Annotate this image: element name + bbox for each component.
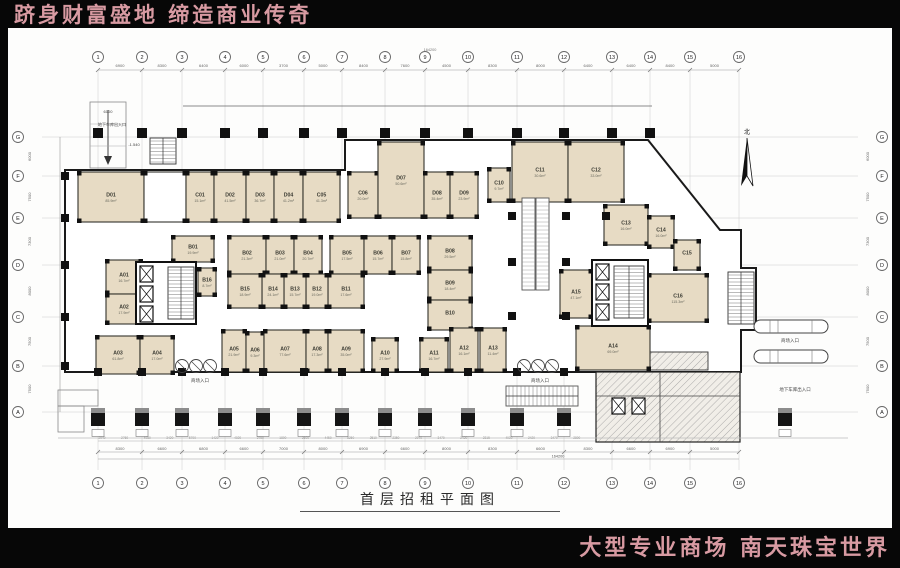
- svg-text:9.7m²: 9.7m²: [494, 187, 504, 191]
- svg-text:A08: A08: [312, 347, 322, 353]
- svg-text:D02: D02: [225, 193, 235, 199]
- svg-text:17.5m²: 17.5m²: [341, 257, 353, 261]
- svg-text:B06: B06: [373, 251, 383, 257]
- unit: [143, 171, 187, 223]
- svg-text:B08: B08: [445, 249, 455, 255]
- svg-text:15: 15: [687, 481, 693, 487]
- svg-text:11: 11: [514, 55, 520, 61]
- svg-text:23.9m²: 23.9m²: [458, 197, 470, 201]
- svg-text:16: 16: [736, 55, 742, 61]
- svg-text:B: B: [16, 364, 20, 370]
- svg-text:A01: A01: [119, 273, 129, 279]
- unit-A12: A1216.1m²: [449, 327, 479, 373]
- svg-text:B12: B12: [312, 287, 322, 293]
- svg-text:A07: A07: [280, 347, 290, 353]
- svg-text:8: 8: [383, 481, 386, 487]
- svg-text:8000: 8000: [319, 446, 329, 451]
- unit-B06: B0615.7m²: [363, 235, 393, 275]
- svg-text:17.9m²: 17.9m²: [118, 311, 130, 315]
- svg-text:7500: 7500: [865, 336, 870, 346]
- svg-text:8: 8: [383, 55, 386, 61]
- unit-A06: A069.3m²: [245, 331, 265, 373]
- svg-text:商场入口: 商场入口: [191, 377, 209, 384]
- svg-text:C13: C13: [621, 221, 631, 227]
- svg-text:20.0m²: 20.0m²: [357, 197, 369, 201]
- svg-text:5: 5: [261, 55, 264, 61]
- svg-text:E: E: [880, 216, 884, 222]
- unit-B10: B10: [427, 299, 473, 331]
- svg-text:C11: C11: [535, 168, 544, 174]
- svg-text:20.7m²: 20.7m²: [302, 257, 314, 261]
- svg-text:D09: D09: [459, 191, 469, 197]
- svg-text:B16: B16: [202, 278, 212, 284]
- svg-text:2: 2: [140, 481, 143, 487]
- svg-text:A12: A12: [459, 346, 469, 352]
- svg-text:15.7m²: 15.7m²: [289, 293, 301, 297]
- unit-A08: A0817.3m²: [305, 329, 329, 373]
- svg-text:B15: B15: [240, 287, 250, 293]
- svg-text:29.5m²: 29.5m²: [444, 255, 456, 259]
- svg-text:A03: A03: [113, 351, 123, 357]
- svg-text:A15: A15: [571, 290, 581, 296]
- svg-text:16: 16: [736, 481, 742, 487]
- unit-C14: C1416.0m²: [647, 215, 675, 249]
- svg-text:2: 2: [140, 55, 143, 61]
- svg-text:50.6m²: 50.6m²: [395, 182, 407, 186]
- unit-C01: C0115.1m²: [185, 171, 215, 223]
- svg-text:15.7m²: 15.7m²: [372, 257, 384, 261]
- svg-text:-1.540: -1.540: [128, 142, 140, 147]
- svg-text:D03: D03: [255, 193, 265, 199]
- svg-text:18.4m²: 18.4m²: [444, 287, 456, 291]
- svg-text:115.3m²: 115.3m²: [672, 300, 686, 304]
- unit-D07: D0750.6m²: [377, 141, 425, 219]
- unit-B09: B0918.4m²: [427, 269, 473, 301]
- unit-B02: B0221.3m²: [227, 235, 267, 275]
- svg-text:16.0m²: 16.0m²: [655, 234, 667, 238]
- unit-C06: C0620.0m²: [347, 171, 379, 219]
- svg-text:B13: B13: [290, 287, 300, 293]
- svg-text:北: 北: [744, 128, 750, 136]
- svg-text:77.6m²: 77.6m²: [279, 353, 291, 357]
- svg-text:A11: A11: [429, 351, 438, 357]
- svg-text:16.7m²: 16.7m²: [118, 279, 130, 283]
- svg-text:36.7m²: 36.7m²: [254, 199, 266, 203]
- unit-A07: A0777.6m²: [263, 329, 307, 373]
- svg-text:6000: 6000: [865, 151, 870, 161]
- svg-text:C12: C12: [591, 168, 601, 174]
- svg-text:9: 9: [423, 481, 426, 487]
- svg-text:6: 6: [302, 55, 305, 61]
- svg-text:15.8m²: 15.8m²: [400, 257, 412, 261]
- svg-text:D01: D01: [106, 193, 116, 199]
- svg-text:6: 6: [302, 481, 305, 487]
- svg-text:4: 4: [223, 481, 226, 487]
- svg-text:1: 1: [96, 55, 99, 61]
- unit-C05: C0541.3m²: [302, 171, 341, 223]
- svg-text:C05: C05: [317, 193, 327, 199]
- svg-text:7500: 7500: [865, 384, 870, 394]
- svg-text:6600: 6600: [240, 446, 250, 451]
- unit-C11: C1130.6m²: [511, 141, 569, 203]
- svg-text:A02: A02: [119, 305, 129, 311]
- svg-text:21.3m²: 21.3m²: [241, 257, 253, 261]
- svg-text:3: 3: [180, 481, 183, 487]
- svg-text:6900: 6900: [666, 446, 676, 451]
- svg-text:B05: B05: [342, 251, 352, 257]
- svg-text:8000: 8000: [865, 286, 870, 296]
- svg-text:7000: 7000: [279, 446, 289, 451]
- unit-A05: A0521.9m²: [221, 329, 247, 373]
- unit-B15: B1518.9m²: [227, 273, 263, 309]
- svg-text:C: C: [16, 315, 20, 321]
- svg-text:A04: A04: [152, 351, 162, 357]
- svg-text:18.9m²: 18.9m²: [239, 293, 251, 297]
- bottom-banner-slogan: 大型专业商场 南天珠宝世界: [579, 528, 890, 568]
- svg-text:41.2m²: 41.2m²: [283, 199, 295, 203]
- svg-text:6900: 6900: [116, 63, 126, 68]
- svg-text:8000: 8000: [442, 446, 452, 451]
- svg-text:30.6m²: 30.6m²: [534, 174, 546, 178]
- svg-text:6100: 6100: [104, 109, 114, 114]
- svg-text:8300: 8300: [158, 63, 168, 68]
- svg-text:A: A: [16, 410, 20, 416]
- svg-text:B01: B01: [188, 245, 198, 251]
- svg-text:5000: 5000: [319, 63, 329, 68]
- svg-text:6400: 6400: [199, 63, 209, 68]
- svg-text:12: 12: [561, 55, 567, 61]
- svg-text:6400: 6400: [584, 63, 594, 68]
- svg-text:D: D: [880, 263, 884, 269]
- svg-text:8300: 8300: [584, 446, 594, 451]
- svg-text:9.3m²: 9.3m²: [250, 354, 260, 358]
- unit-B08: B0829.5m²: [427, 235, 473, 271]
- unit-B03: B0321.0m²: [265, 235, 295, 275]
- unit-B07: B0715.8m²: [391, 235, 421, 275]
- svg-text:21.0m²: 21.0m²: [274, 257, 286, 261]
- unit-D01: D0185.9m²: [77, 171, 145, 223]
- svg-text:85.9m²: 85.9m²: [105, 199, 117, 203]
- svg-text:14: 14: [647, 55, 653, 61]
- svg-text:7500: 7500: [27, 384, 32, 394]
- svg-text:8400: 8400: [666, 63, 676, 68]
- unit-D09: D0923.9m²: [449, 171, 479, 219]
- svg-text:商场入口: 商场入口: [781, 337, 799, 344]
- svg-text:D: D: [16, 263, 20, 269]
- svg-text:41.5m²: 41.5m²: [224, 199, 236, 203]
- unit-C15: C15: [673, 239, 701, 271]
- svg-text:3: 3: [180, 55, 183, 61]
- svg-text:4500: 4500: [442, 63, 452, 68]
- unit-D04: D0441.2m²: [273, 171, 304, 223]
- svg-text:C15: C15: [682, 251, 692, 257]
- unit-B11: B1117.6m²: [327, 273, 365, 309]
- svg-text:15: 15: [687, 55, 693, 61]
- unit-B13: B1315.7m²: [283, 273, 307, 309]
- unit-A15: A1547.1m²: [559, 269, 593, 319]
- svg-text:6600: 6600: [536, 446, 546, 451]
- svg-text:35.0m²: 35.0m²: [340, 353, 352, 357]
- svg-text:1: 1: [96, 481, 99, 487]
- svg-text:C14: C14: [656, 228, 666, 234]
- svg-text:C10: C10: [494, 181, 504, 187]
- svg-text:35.4m²: 35.4m²: [431, 197, 443, 201]
- unit-B12: B1219.0m²: [305, 273, 329, 309]
- unit-A14: A1469.0m²: [575, 325, 651, 371]
- svg-text:A13: A13: [488, 346, 498, 352]
- unit-D08: D0835.4m²: [423, 171, 451, 219]
- top-banner-slogan: 跻身财富盛地 缔造商业传奇: [14, 0, 312, 28]
- svg-text:8000: 8000: [536, 63, 546, 68]
- svg-text:6600: 6600: [158, 446, 168, 451]
- svg-text:61.8m²: 61.8m²: [112, 357, 124, 361]
- svg-text:6000: 6000: [27, 151, 32, 161]
- svg-text:8300: 8300: [488, 446, 498, 451]
- unit-A09: A0935.0m²: [327, 329, 365, 373]
- svg-text:G: G: [880, 135, 884, 141]
- svg-text:10: 10: [465, 55, 471, 61]
- svg-text:7300: 7300: [865, 236, 870, 246]
- svg-text:A10: A10: [380, 351, 390, 357]
- north-arrow: 北: [741, 128, 753, 186]
- unit-B14: B1424.1m²: [261, 273, 285, 309]
- unit-A10: A1027.9m²: [371, 337, 399, 373]
- svg-text:8.7m²: 8.7m²: [202, 284, 212, 288]
- svg-text:6900: 6900: [359, 446, 369, 451]
- svg-text:164200: 164200: [552, 455, 565, 459]
- svg-text:47.1m²: 47.1m²: [570, 296, 582, 300]
- unit-C10: C109.7m²: [487, 167, 511, 203]
- unit-C13: C1316.0m²: [603, 204, 649, 246]
- svg-text:B07: B07: [401, 251, 411, 257]
- svg-text:B14: B14: [268, 287, 278, 293]
- unit-B04: B0420.7m²: [293, 235, 323, 275]
- svg-text:9: 9: [423, 55, 426, 61]
- svg-text:B03: B03: [275, 251, 285, 257]
- svg-text:B04: B04: [303, 251, 313, 257]
- svg-text:地下车库出入口: 地下车库出入口: [98, 121, 126, 127]
- unit-A13: A1311.4m²: [479, 327, 507, 373]
- svg-text:13: 13: [609, 55, 615, 61]
- floor-plan-title: 首层招租平面图: [300, 489, 560, 512]
- svg-text:19.0m²: 19.0m²: [311, 293, 323, 297]
- svg-text:13: 13: [609, 481, 615, 487]
- svg-text:B10: B10: [445, 311, 455, 317]
- svg-text:A05: A05: [229, 347, 239, 353]
- svg-text:27.9m²: 27.9m²: [379, 357, 391, 361]
- svg-text:41.3m²: 41.3m²: [316, 199, 328, 203]
- svg-text:C01: C01: [195, 193, 205, 199]
- svg-text:B09: B09: [445, 281, 455, 287]
- svg-text:21.9m²: 21.9m²: [228, 353, 240, 357]
- svg-text:7500: 7500: [27, 192, 32, 202]
- svg-text:33.0m²: 33.0m²: [590, 174, 602, 178]
- svg-text:3700: 3700: [279, 63, 289, 68]
- svg-text:24.1m²: 24.1m²: [267, 293, 279, 297]
- svg-text:7300: 7300: [27, 236, 32, 246]
- svg-text:11: 11: [514, 481, 520, 487]
- svg-text:D04: D04: [284, 193, 294, 199]
- svg-text:10: 10: [465, 481, 471, 487]
- svg-text:A09: A09: [341, 347, 351, 353]
- svg-text:16.0m²: 16.0m²: [620, 227, 632, 231]
- poster-frame: 6900830083006600640068006000660037007000…: [0, 0, 900, 568]
- svg-text:G: G: [16, 135, 20, 141]
- svg-text:5000: 5000: [710, 446, 720, 451]
- svg-text:6600: 6600: [401, 446, 411, 451]
- svg-text:14: 14: [647, 481, 653, 487]
- svg-text:5: 5: [261, 481, 264, 487]
- svg-text:A14: A14: [608, 344, 618, 350]
- unit-D03: D0336.7m²: [245, 171, 275, 223]
- svg-text:8400: 8400: [359, 63, 369, 68]
- svg-text:E: E: [16, 216, 20, 222]
- svg-text:6000: 6000: [240, 63, 250, 68]
- svg-text:16.1m²: 16.1m²: [458, 352, 470, 356]
- svg-text:19.9m²: 19.9m²: [187, 251, 199, 255]
- svg-text:A: A: [880, 410, 884, 416]
- svg-text:D07: D07: [396, 176, 406, 182]
- svg-text:C: C: [880, 315, 884, 321]
- svg-text:商场入口: 商场入口: [531, 377, 549, 384]
- unit-B05: B0517.5m²: [329, 235, 365, 275]
- svg-text:11.4m²: 11.4m²: [488, 352, 500, 356]
- svg-text:7500: 7500: [865, 192, 870, 202]
- svg-text:5000: 5000: [710, 63, 720, 68]
- svg-text:B11: B11: [341, 287, 350, 293]
- unit-B16: B168.7m²: [197, 267, 217, 297]
- unit-B01: B0119.9m²: [171, 235, 215, 263]
- svg-text:15.1m²: 15.1m²: [194, 199, 206, 203]
- svg-text:D08: D08: [432, 191, 442, 197]
- svg-text:17.6m²: 17.6m²: [340, 293, 352, 297]
- svg-text:17.3m²: 17.3m²: [311, 353, 323, 357]
- svg-text:7500: 7500: [27, 336, 32, 346]
- svg-text:6600: 6600: [627, 446, 637, 451]
- svg-text:A06: A06: [250, 348, 260, 354]
- unit-C12: C1233.0m²: [567, 141, 625, 203]
- svg-text:8300: 8300: [488, 63, 498, 68]
- svg-text:7: 7: [340, 481, 343, 487]
- unit-A11: A1116.7m²: [419, 337, 449, 373]
- svg-text:8000: 8000: [27, 286, 32, 296]
- svg-text:17.0m²: 17.0m²: [151, 357, 163, 361]
- svg-text:4: 4: [223, 55, 226, 61]
- svg-text:C16: C16: [673, 294, 683, 300]
- unit-C16: C16115.3m²: [647, 273, 709, 323]
- svg-text:6800: 6800: [199, 446, 209, 451]
- svg-text:B02: B02: [242, 251, 252, 257]
- svg-text:6400: 6400: [627, 63, 637, 68]
- svg-text:地下车库出入口: 地下车库出入口: [779, 386, 811, 393]
- svg-text:16.7m²: 16.7m²: [428, 357, 440, 361]
- svg-text:B: B: [880, 364, 884, 370]
- svg-text:7: 7: [340, 55, 343, 61]
- svg-text:C06: C06: [358, 191, 368, 197]
- unit-D02: D0241.5m²: [213, 171, 247, 223]
- svg-text:69.0m²: 69.0m²: [607, 350, 619, 354]
- svg-text:8300: 8300: [116, 446, 126, 451]
- svg-text:12: 12: [561, 481, 567, 487]
- floor-plan-drawing: 6900830083006600640068006000660037007000…: [0, 0, 900, 568]
- svg-text:7600: 7600: [401, 63, 411, 68]
